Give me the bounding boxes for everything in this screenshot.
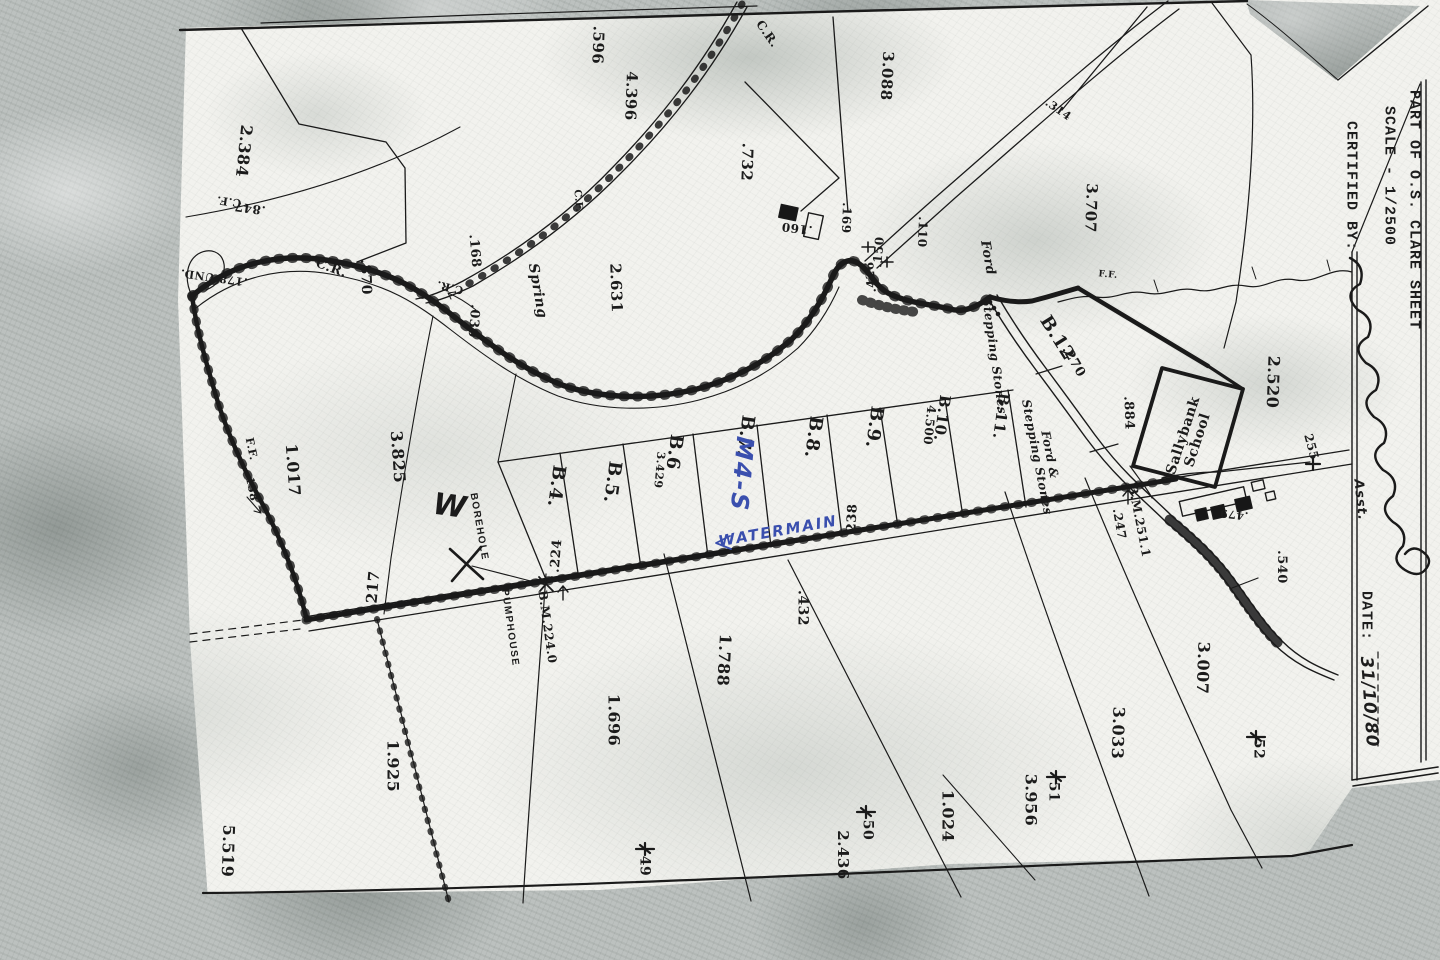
map-label: 5.519	[218, 824, 237, 877]
map-label: 1.925	[384, 740, 401, 793]
map-label: .870	[357, 259, 373, 296]
map-label: W	[431, 489, 469, 526]
map-label: .596	[589, 25, 607, 64]
date-label: DATE:	[1358, 591, 1375, 641]
map-label: M4-S	[725, 435, 757, 513]
map-label: 2.436	[835, 830, 851, 879]
map-label: C.F.	[216, 193, 242, 208]
map-label: 3.007	[1193, 641, 1212, 694]
map-label: .884	[1120, 396, 1135, 430]
map-label: 49	[636, 856, 651, 876]
stream-upper-right	[1058, 260, 1352, 302]
map-label: .030	[465, 304, 482, 339]
map-label: .732	[738, 142, 756, 181]
map-label: 1.696	[605, 694, 622, 747]
borehole-marks	[247, 292, 731, 591]
map-label: 3.825	[388, 430, 409, 484]
map-label: .169	[839, 202, 853, 234]
map-label: F.F.	[1098, 270, 1118, 281]
map-label: 2.631	[607, 263, 625, 313]
map-label: .426	[863, 261, 879, 293]
map-label: 217	[364, 570, 383, 604]
map-label: 1.788	[714, 633, 734, 686]
map-label: 2.520	[1263, 355, 1282, 408]
map-label: 51	[1045, 782, 1060, 802]
map-label: .168	[466, 234, 483, 269]
map-linework	[0, 0, 1440, 960]
map-label: 1.017	[283, 443, 304, 497]
map-label: 3.033	[1108, 706, 1127, 759]
road-upper	[416, 2, 747, 303]
plot-strip-boundaries	[384, 316, 1026, 614]
map-label: 52	[1250, 739, 1265, 759]
road-top-right	[865, 1, 1179, 268]
map-label: 4.396	[622, 71, 640, 121]
sheet-title: PART OF O.S. CLARE SHEET	[1406, 90, 1423, 330]
map-label: 50	[859, 820, 874, 840]
map-label: 1.024	[939, 790, 956, 843]
certified-by-label: CERTIFIED BY:	[1343, 121, 1360, 251]
sheet-scale: SCALE - 1/2500	[1381, 106, 1398, 246]
map-label: B.6	[662, 433, 686, 471]
map-label: .110	[915, 216, 929, 248]
map-label: .160	[781, 220, 814, 237]
map-label: 3.088	[878, 51, 897, 101]
map-label: .224	[549, 539, 566, 574]
map-label: 3.707	[1082, 183, 1100, 233]
map-label: 3.956	[1022, 774, 1039, 827]
map-label: .540	[1274, 550, 1288, 584]
scanned-map-sheet: .5962.3844.3963.088.7323.707.314.847C.F.…	[0, 0, 1440, 960]
map-label: C.F.	[571, 189, 584, 213]
map-label: .432	[794, 590, 809, 626]
map-label: .479	[1219, 507, 1249, 522]
school-parcel	[1130, 366, 1310, 498]
map-label: 238	[845, 503, 861, 532]
field-boundaries-lower	[377, 478, 1262, 903]
